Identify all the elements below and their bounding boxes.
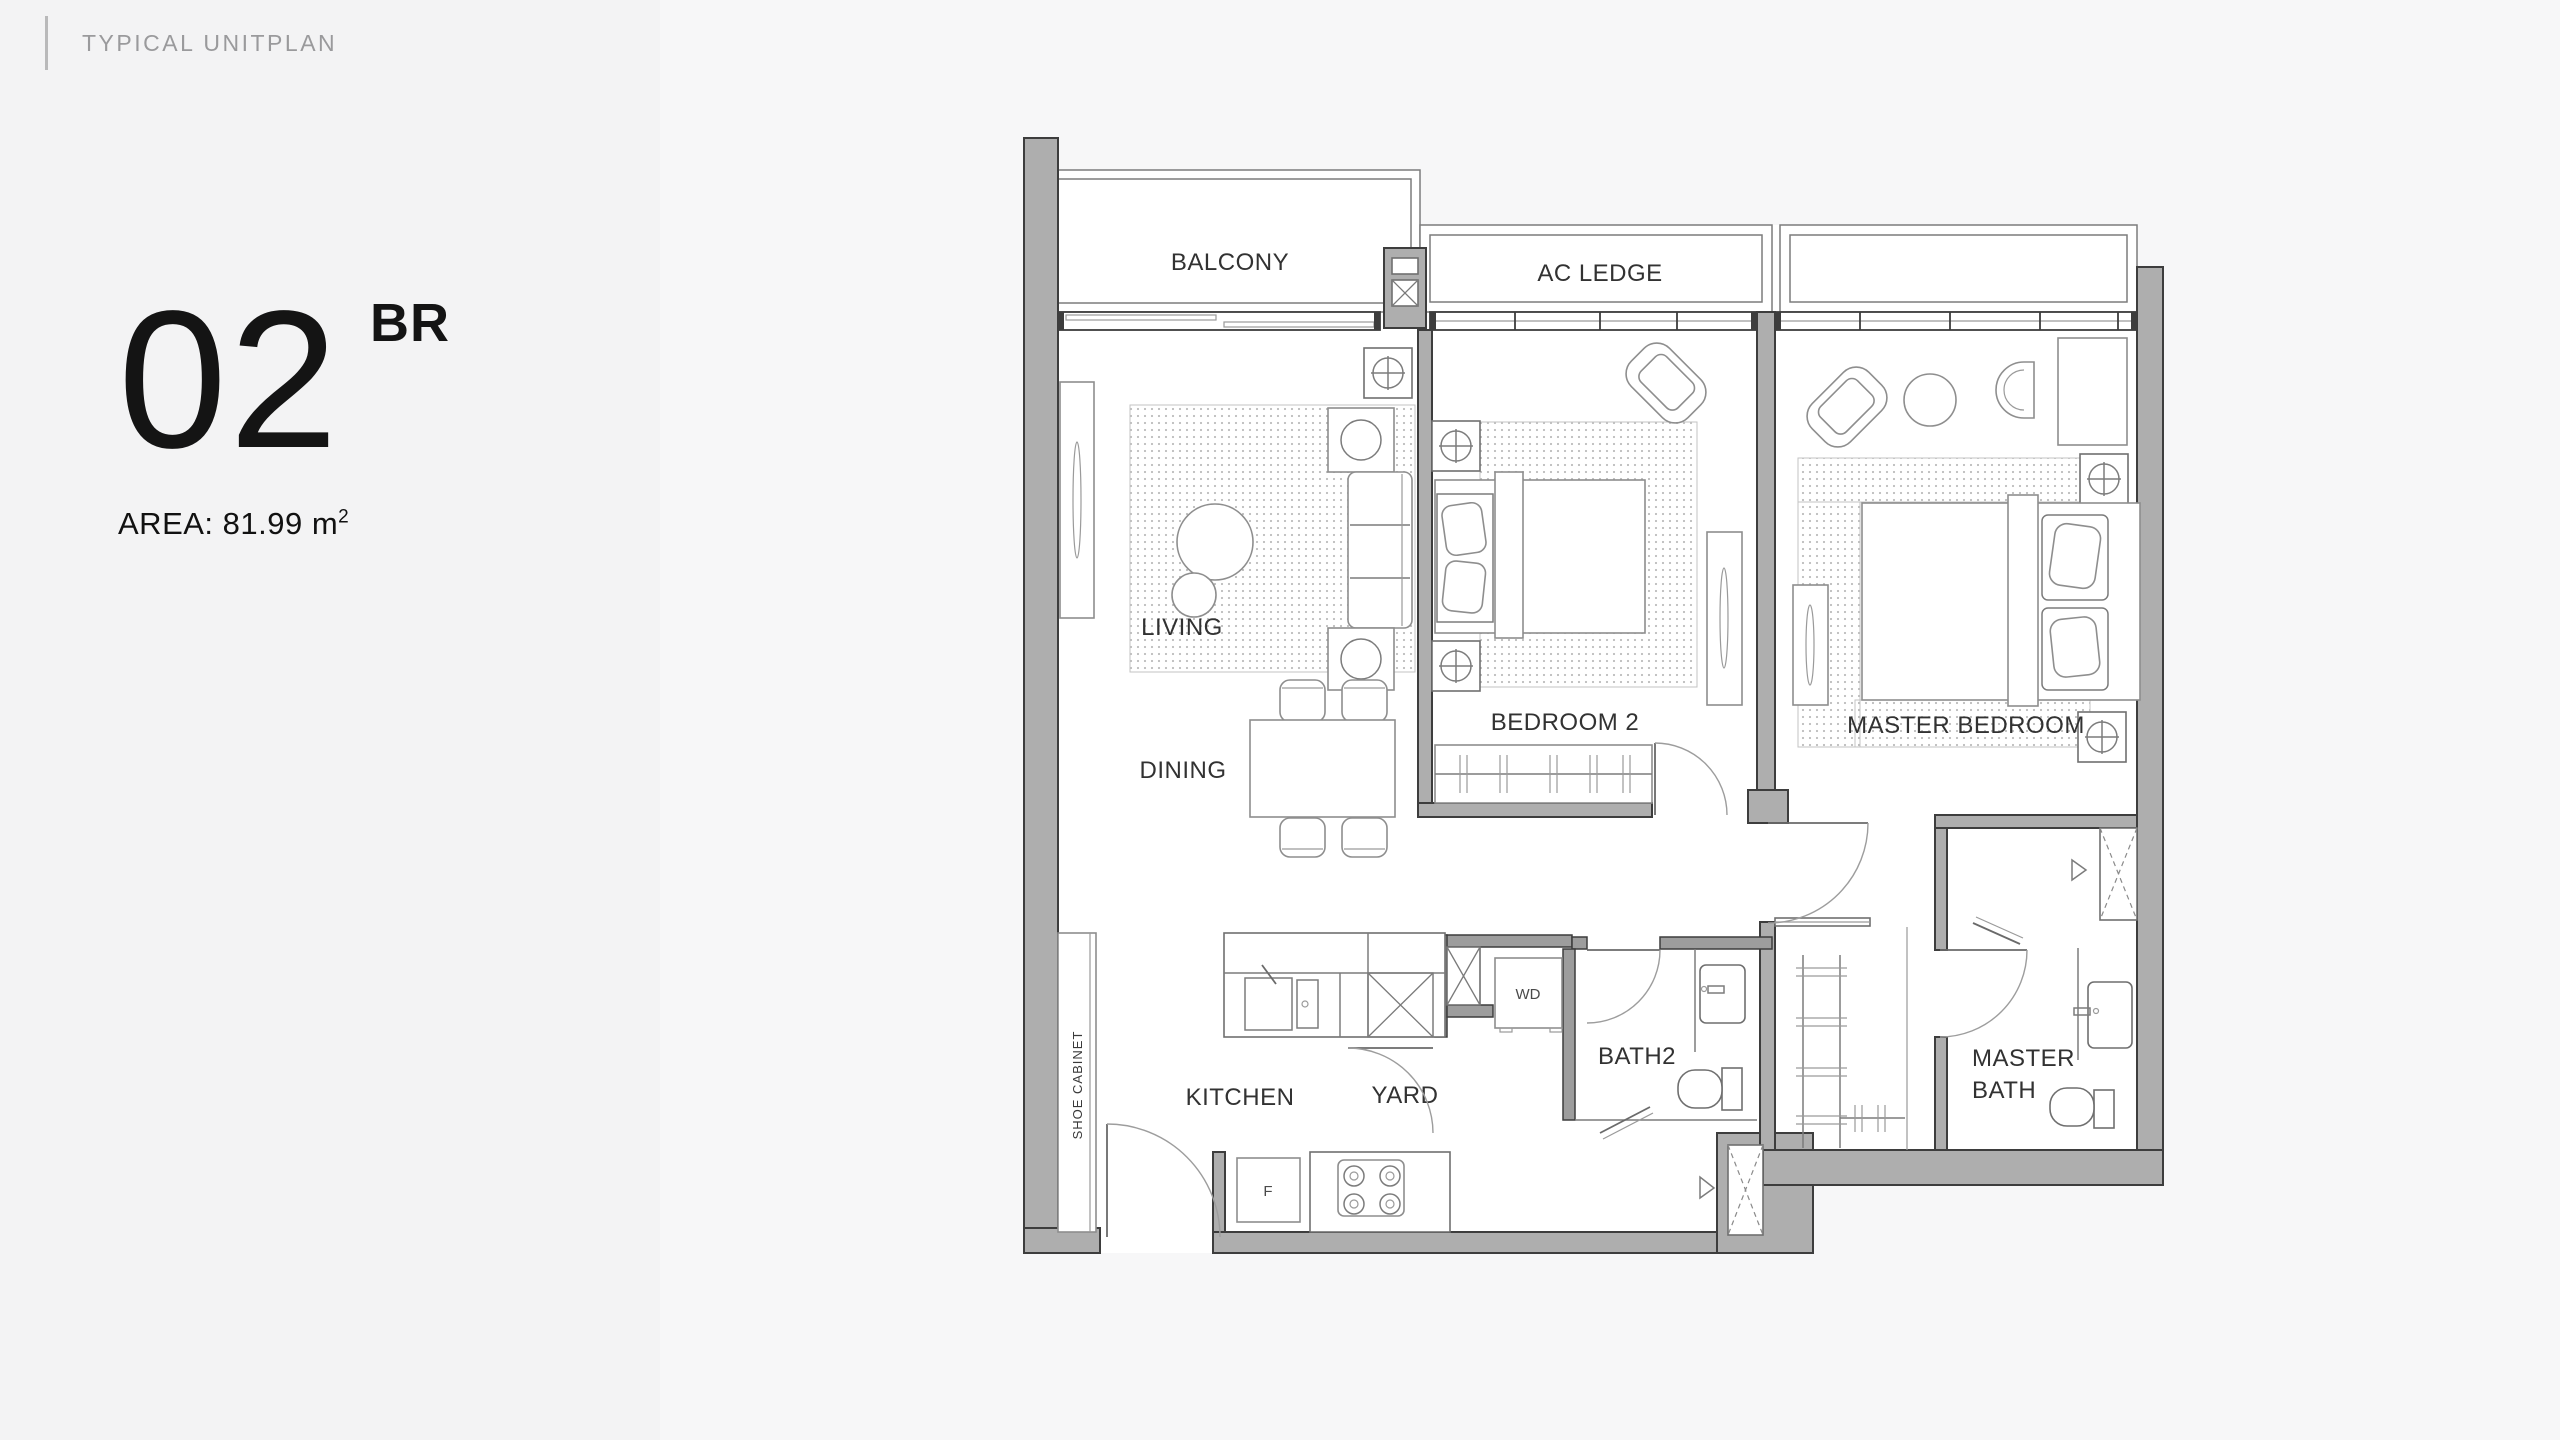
bottom-wall-right	[1763, 1150, 2163, 1185]
master-desk	[2058, 338, 2127, 445]
shoe-cabinet: SHOE CABINET	[1058, 933, 1096, 1232]
bath2-toilet	[1678, 1070, 1722, 1108]
label-bedroom2: BEDROOM 2	[1491, 709, 1640, 736]
master-wardrobe-panel	[1793, 585, 1828, 705]
bath2-sink	[1700, 965, 1745, 1023]
master-pillow	[2048, 522, 2102, 590]
dining-chair	[1342, 818, 1387, 857]
master-bath-top-wall	[1935, 815, 2137, 828]
label-balcony: BALCONY	[1171, 249, 1289, 276]
master-fan-coil-icon-2	[2078, 712, 2126, 762]
living-lamp-table	[1177, 504, 1253, 580]
bedroom2-wardrobe	[1435, 745, 1652, 803]
bedroom2-fan-coil-icon	[1432, 421, 1480, 471]
label-living: LIVING	[1141, 614, 1223, 641]
label-dining: DINING	[1140, 757, 1227, 784]
closet-left-wall	[1760, 922, 1775, 1150]
label-ac-ledge: AC LEDGE	[1537, 260, 1662, 287]
dining-chair	[1342, 680, 1387, 722]
dining-chair	[1280, 680, 1325, 722]
left-wall	[1024, 138, 1058, 1250]
kitchen-counter-top	[1224, 933, 1445, 1037]
page: TYPICAL UNITPLAN 02 BR AREA: 81.99 m2	[0, 0, 2560, 1440]
sofa-side-table-top	[1328, 408, 1394, 472]
bedroom2-bottom-wall	[1418, 803, 1652, 817]
living-bedroom2-wall	[1418, 330, 1432, 803]
window-walls	[1058, 312, 2137, 330]
yard-bath2-wall	[1563, 949, 1575, 1120]
master-round-table	[1904, 374, 1956, 426]
dining-table	[1250, 720, 1395, 817]
bath2-top-wall	[1660, 937, 1772, 949]
living-curtain-panel	[1060, 382, 1094, 618]
master-fan-coil-icon	[2080, 454, 2128, 504]
living-fan-coil-icon	[1364, 348, 1412, 398]
balcony: BALCONY	[1048, 170, 1420, 312]
master-bath-toilet	[2050, 1088, 2094, 1126]
label-bath2: BATH2	[1598, 1043, 1676, 1070]
ac-shaft-block	[1384, 248, 1426, 328]
dining-chair	[1280, 818, 1325, 857]
label-master-bath-2: BATH	[1972, 1077, 2036, 1104]
bedroom2-curtain-panel	[1707, 532, 1742, 705]
master-pillow	[2049, 616, 2101, 678]
label-fridge: F	[1263, 1183, 1272, 1200]
label-kitchen: KITCHEN	[1186, 1084, 1295, 1111]
yard-top-wall	[1445, 935, 1572, 947]
bedroom2-pillow	[1441, 501, 1488, 556]
label-shoe-cabinet: SHOE CABINET	[1070, 1031, 1085, 1140]
ledge-2	[1780, 225, 2137, 312]
label-master-bath-1: MASTER	[1972, 1045, 2075, 1072]
floor-plan: BALCONY AC LEDGE	[0, 0, 2560, 1440]
right-wall	[2137, 267, 2163, 1185]
bedroom2-fan-coil-icon-2	[1432, 641, 1480, 691]
label-washer-dryer: WD	[1516, 986, 1541, 1003]
label-master-bedroom: MASTER BEDROOM	[1847, 712, 2085, 739]
bedroom2-master-wall	[1757, 312, 1775, 790]
master-bath-sink	[2088, 982, 2132, 1048]
bedroom2-pillow	[1441, 560, 1486, 614]
floor-plan-drawing: BALCONY AC LEDGE	[1010, 120, 2200, 1290]
